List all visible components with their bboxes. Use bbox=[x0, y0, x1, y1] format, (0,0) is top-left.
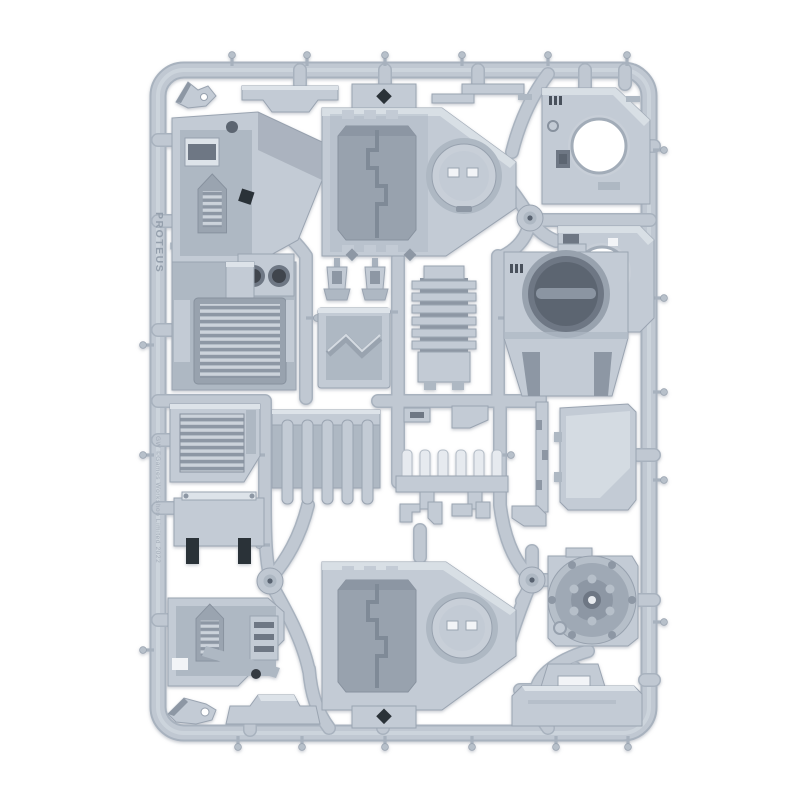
runner-junction-disc bbox=[257, 568, 283, 594]
part-side-armour-bottom-left bbox=[168, 598, 284, 686]
sprue-photo-svg: PROTEUS GW ©Games Workshop Limited 2022 bbox=[0, 0, 800, 800]
part-tall-side-panel bbox=[554, 404, 636, 510]
sprue: PROTEUS GW ©Games Workshop Limited 2022 bbox=[140, 52, 668, 751]
part-rear-bulkhead bbox=[504, 244, 628, 396]
part-door-panel-top-right bbox=[542, 88, 650, 204]
part-side-armour-top-left bbox=[172, 112, 335, 262]
part-searchlight-left bbox=[324, 258, 350, 300]
runner-junction-disc bbox=[517, 205, 543, 231]
part-wheel-hub bbox=[548, 548, 638, 646]
part-hull-roof-front bbox=[322, 84, 516, 261]
part-slotted-plate bbox=[174, 492, 264, 564]
part-low-fender bbox=[226, 695, 320, 724]
part-chevron-hatch bbox=[318, 308, 390, 388]
frame-text-proteus: PROTEUS bbox=[153, 212, 165, 273]
part-hook-clip-bottom bbox=[168, 698, 216, 724]
part-stepped-strip bbox=[536, 402, 548, 512]
runner-junction-disc bbox=[519, 567, 545, 593]
part-hook-clip-top bbox=[176, 82, 216, 108]
part-hull-roof-rear bbox=[322, 562, 516, 728]
part-rear-access-panel bbox=[512, 664, 642, 726]
part-searchlight-right bbox=[362, 258, 388, 300]
frame-text-copyright: GW ©Games Workshop Limited 2022 bbox=[154, 436, 162, 563]
product-photo: PROTEUS GW ©Games Workshop Limited 2022 bbox=[0, 0, 800, 800]
part-louvred-hatch bbox=[170, 404, 260, 482]
part-ribbed-panel bbox=[272, 410, 380, 504]
part-radiator-block bbox=[412, 266, 476, 390]
part-engine-deck bbox=[172, 254, 296, 390]
part-periscope-rail bbox=[396, 450, 508, 509]
